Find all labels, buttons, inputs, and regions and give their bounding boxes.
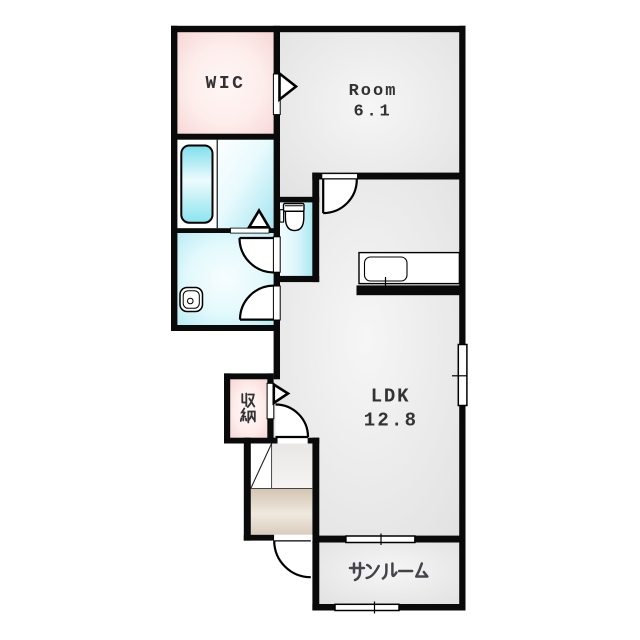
svg-text:WIC: WIC bbox=[206, 74, 246, 94]
svg-text:12.8: 12.8 bbox=[364, 410, 418, 432]
svg-text:Room: Room bbox=[349, 82, 398, 101]
svg-text:LDK: LDK bbox=[371, 386, 411, 408]
svg-text:6.1: 6.1 bbox=[353, 103, 392, 122]
